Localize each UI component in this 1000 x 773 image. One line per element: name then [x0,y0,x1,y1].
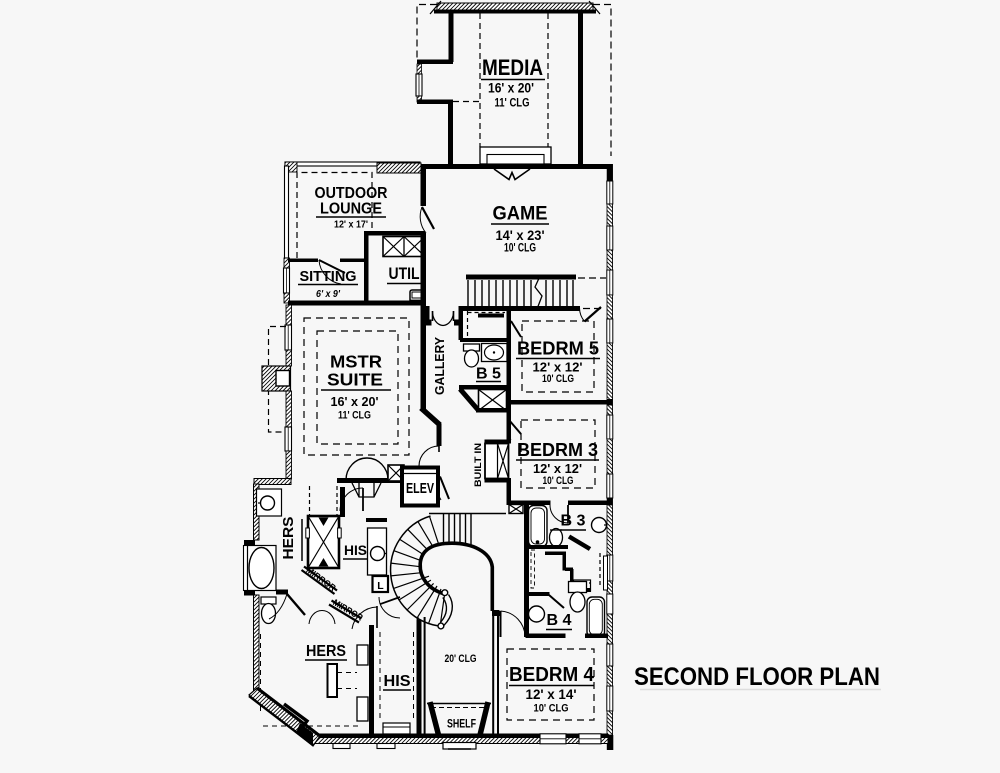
svg-text:10' CLG: 10' CLG [504,243,536,255]
svg-text:UTIL: UTIL [389,265,420,283]
svg-text:16' x 20': 16' x 20' [488,80,534,96]
svg-text:10' CLG: 10' CLG [543,475,574,487]
svg-text:SUITE: SUITE [327,370,383,390]
svg-text:GALLERY: GALLERY [433,336,447,395]
svg-text:12' x 12': 12' x 12' [533,461,582,476]
svg-text:B 3: B 3 [561,513,586,530]
svg-text:BUILT IN: BUILT IN [473,443,484,487]
svg-text:MEDIA: MEDIA [482,55,543,80]
svg-text:SITTING: SITTING [300,269,357,285]
svg-text:11' CLG: 11' CLG [495,96,530,110]
svg-text:10' CLG: 10' CLG [542,373,574,385]
svg-text:GAME: GAME [493,203,548,225]
svg-text:16' x 20': 16' x 20' [331,394,379,409]
svg-text:20' CLG: 20' CLG [445,653,477,665]
svg-text:B 5: B 5 [476,366,501,383]
svg-text:12' x 17': 12' x 17' [334,219,368,231]
svg-text:HIS: HIS [384,673,411,690]
svg-text:OUTDOOR: OUTDOOR [315,185,388,202]
svg-text:14' x 23': 14' x 23' [496,228,545,243]
svg-text:BEDRM 5: BEDRM 5 [517,338,599,359]
svg-text:LOUNGE: LOUNGE [320,201,382,218]
svg-text:ELEV: ELEV [406,481,434,497]
svg-text:SHELF: SHELF [447,717,476,731]
svg-text:BEDRM 3: BEDRM 3 [517,439,598,460]
svg-text:BEDRM 4: BEDRM 4 [509,664,595,686]
svg-text:6' x 9': 6' x 9' [316,288,340,300]
svg-text:10' CLG: 10' CLG [534,703,569,715]
svg-text:L: L [377,580,384,592]
svg-text:MSTR: MSTR [330,352,382,372]
svg-text:HERS: HERS [306,643,346,660]
svg-text:SECOND FLOOR PLAN: SECOND FLOOR PLAN [634,663,880,691]
svg-text:B 4: B 4 [547,612,572,629]
svg-text:HIS: HIS [344,542,367,558]
svg-text:12' x 14': 12' x 14' [526,687,577,702]
svg-text:11' CLG: 11' CLG [338,410,371,422]
svg-text:HERS: HERS [280,517,297,560]
